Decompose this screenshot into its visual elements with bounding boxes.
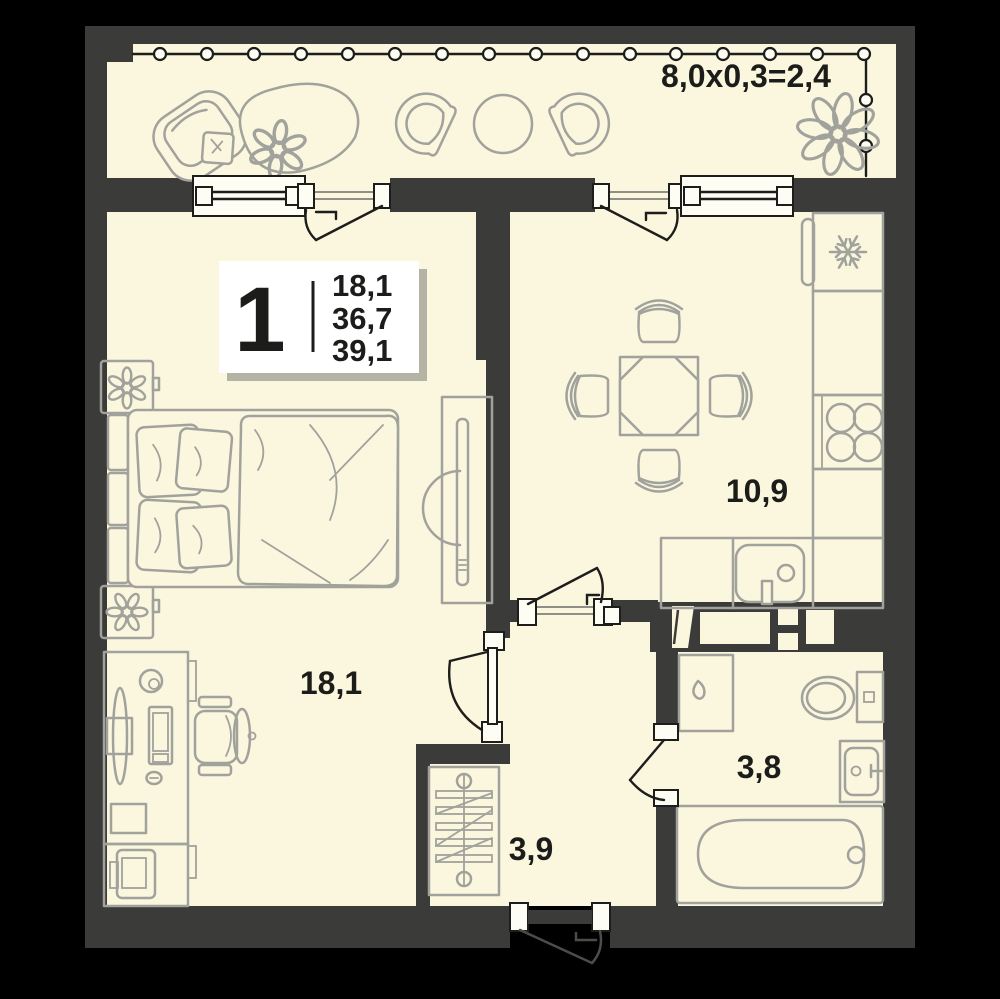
kitchen-area-label: 10,9 xyxy=(726,473,788,509)
balcony-dimension-label: 8,0x0,3=2,4 xyxy=(661,58,831,94)
floor-plan-canvas: 8,0x0,3=2,4 10,9 18,1 3,9 3,8 1 18,1 36,… xyxy=(0,0,1000,999)
badge-area-living: 18,1 xyxy=(332,268,392,303)
badge-area-total: 36,7 xyxy=(332,301,392,336)
badge-rooms-count: 1 xyxy=(234,269,285,371)
hallway-area-label: 3,9 xyxy=(509,831,553,867)
bedroom-area-label: 18,1 xyxy=(300,665,362,701)
bedroom-window xyxy=(193,176,305,216)
balcony-table xyxy=(474,95,532,153)
bed xyxy=(108,410,398,587)
entrance-door xyxy=(510,903,610,963)
badge-area-total-with-balcony: 39,1 xyxy=(332,333,392,368)
area-badge: 1 18,1 36,7 39,1 xyxy=(219,261,427,381)
kitchen-sink xyxy=(736,545,804,604)
apartment-floor-plan: 8,0x0,3=2,4 10,9 18,1 3,9 3,8 1 18,1 36,… xyxy=(0,0,1000,999)
kitchen-window xyxy=(681,176,793,216)
bathroom-area-label: 3,8 xyxy=(737,749,781,785)
